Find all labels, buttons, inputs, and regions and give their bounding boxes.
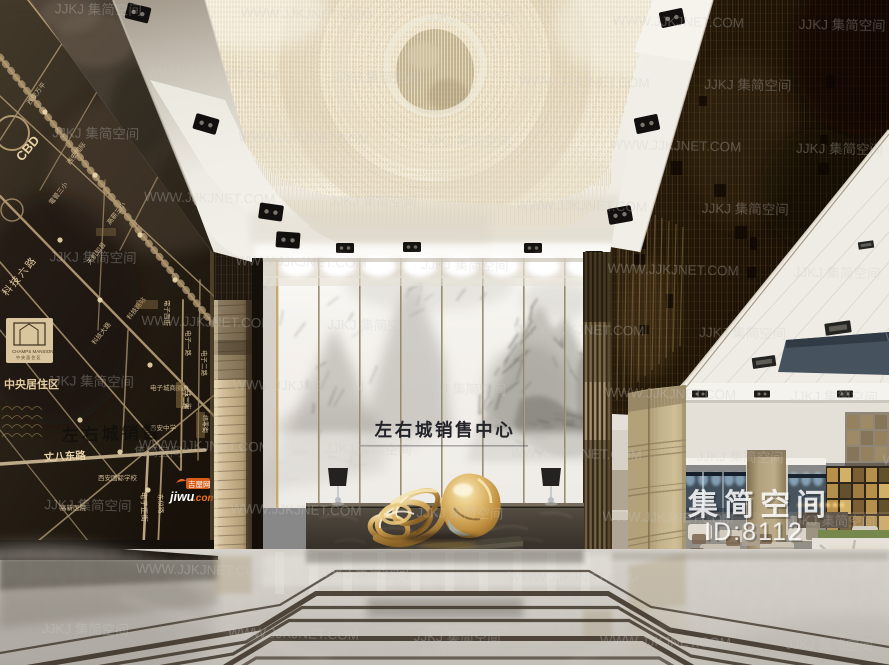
svg-text:JJKJ 集简空间: JJKJ 集简空间 [327,316,414,334]
svg-text:JJKJ 集简空间: JJKJ 集简空间 [322,564,409,582]
svg-text:WWW.JJKJNET.COM: WWW.JJKJNET.COM [510,445,642,463]
svg-text:WWW.JJKJNET.COM: WWW.JJKJNET.COM [228,625,360,643]
svg-text:JJKJ 集简空间: JJKJ 集简空间 [786,636,873,654]
svg-text:jiwu: jiwu [168,490,195,504]
svg-text:JJKJ 集简空间: JJKJ 集简空间 [419,380,506,398]
svg-text:JJKJ 集简空间: JJKJ 集简空间 [427,8,514,26]
svg-text:中 央 居 住 区: 中 央 居 住 区 [16,354,40,360]
svg-text:WWW.JJKJNET.COM: WWW.JJKJNET.COM [605,385,737,403]
svg-text:JJKJ 集简空间: JJKJ 集简空间 [416,504,503,522]
svg-text:JJKJ 集简空间: JJKJ 集简空间 [702,200,789,218]
svg-text:WWW.JJKJNET.COM: WWW.JJKJNET.COM [607,261,739,279]
svg-text:JJKJ 集简空间: JJKJ 集简空间 [793,264,880,282]
svg-text:JJKJ 集简空间: JJKJ 集简空间 [47,372,134,390]
svg-text:JJKJ 集简空间: JJKJ 集简空间 [421,256,508,274]
svg-text:WWW.JJKJNET.COM: WWW.JJKJNET.COM [235,253,367,271]
svg-text:JJKJ 集简空间: JJKJ 集简空间 [796,140,883,158]
svg-text:JJKJ 集简空间: JJKJ 集简空间 [52,124,139,142]
svg-text:JJKJ 集简空间: JJKJ 集简空间 [332,68,419,86]
svg-text:WWW.JJKJNET.COM: WWW.JJKJNET.COM [610,137,742,155]
svg-text:丈八东路: 丈八东路 [43,449,86,464]
svg-text:吉屋网: 吉屋网 [188,480,211,489]
svg-text:JJKJ 集简空间: JJKJ 集简空间 [791,388,878,406]
svg-text:电子一路: 电子一路 [184,330,193,357]
svg-text:ID:8112: ID:8112 [704,518,804,546]
svg-text:集简空间: 集简空间 [687,488,832,522]
svg-text:WWW.JJKJNET.COM: WWW.JJKJNET.COM [241,5,373,23]
svg-text:WWW.JJKJNET.COM: WWW.JJKJNET.COM [508,569,640,587]
svg-text:JJKJ 集简空间: JJKJ 集简空间 [704,76,791,94]
svg-text:电子正街: 电子正街 [139,492,150,523]
svg-text:CHAMPS MANSION: CHAMPS MANSION [12,349,54,354]
svg-text:WWW.JJKJNET.COM: WWW.JJKJNET.COM [144,189,276,207]
svg-text:WWW.JJKJNET.COM: WWW.JJKJNET.COM [238,129,370,147]
svg-text:纬零街: 纬零街 [201,415,209,433]
svg-text:JJKJ 集简空间: JJKJ 集简空间 [424,132,511,150]
svg-text:电子二路: 电子二路 [200,350,209,377]
svg-text:JJKJ 集简空间: JJKJ 集简空间 [49,248,136,266]
svg-text:JJKJ 集简空间: JJKJ 集简空间 [330,192,417,210]
svg-text:WWW.JJKJNET.COM: WWW.JJKJNET.COM [230,501,362,519]
svg-text:JJKJ 集简空间: JJKJ 集简空间 [55,0,142,18]
svg-text:JJKJ 集简空间: JJKJ 集简空间 [42,620,129,638]
svg-text:WWW.JJKJNET.COM: WWW.JJKJNET.COM [613,13,745,31]
svg-text:JJKJ 集简空间: JJKJ 集简空间 [699,324,786,342]
svg-text:电子二路: 电子二路 [181,385,189,409]
svg-text:JJKJ 集简空间: JJKJ 集简空间 [694,572,781,590]
svg-text:WWW.JJKJNET.COM: WWW.JJKJNET.COM [516,197,648,215]
svg-text:WWW.JJKJNET.COM: WWW.JJKJNET.COM [233,377,365,395]
svg-text:JJKJ 集简空间: JJKJ 集简空间 [414,628,501,646]
svg-text:WWW.JJKJNET.COM: WWW.JJKJNET.COM [141,313,273,331]
svg-text:WWW.JJKJNET.COM: WWW.JJKJNET.COM [136,561,268,579]
svg-text:WWW.JJKJNET.COM: WWW.JJKJNET.COM [146,65,278,83]
svg-text:JJKJ 集简空间: JJKJ 集简空间 [799,16,886,34]
svg-text:西安国际学校: 西安国际学校 [98,473,138,482]
svg-text:WWW.JJKJNET.COM: WWW.JJKJNET.COM [139,437,271,455]
svg-text:WWW.JJKJNET.COM: WWW.JJKJNET.COM [518,73,650,91]
svg-text:左右城销售中心: 左右城销售中心 [375,420,516,440]
svg-text:WWW.JJKJNET.COM: WWW.JJKJNET.COM [600,633,732,651]
svg-text:JJKJ 集简空间: JJKJ 集简空间 [44,496,131,514]
svg-text:JJKJ 集简空间: JJKJ 集简空间 [696,448,783,466]
svg-text:WWW.JJKJNET.COM: WWW.JJKJNET.COM [513,321,645,339]
svg-text:JJKJ 集简空间: JJKJ 集简空间 [325,440,412,458]
